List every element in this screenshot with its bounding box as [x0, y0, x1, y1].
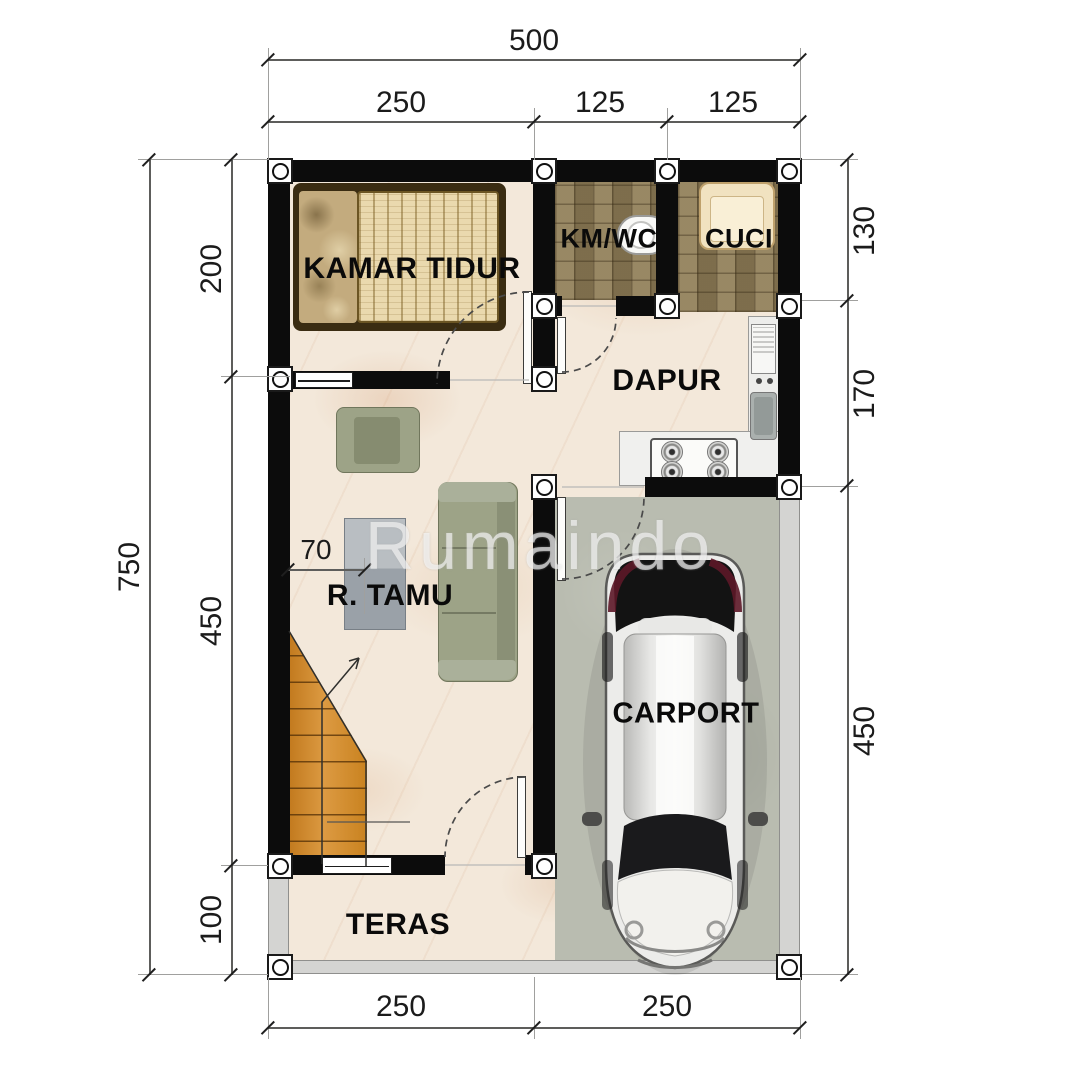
label-bedroom: KAMAR TIDUR [303, 252, 520, 286]
wall-right [778, 160, 800, 497]
label-kitchen: DAPUR [612, 364, 721, 398]
floor-plan: KAMAR TIDUR KM/WC CUCI DAPUR R. TAMU CAR… [0, 0, 1080, 1080]
dim-ext [800, 977, 801, 1039]
dim-bottom-seg-1: 250 [376, 992, 426, 1022]
dim-line-right-segments [847, 160, 849, 975]
car-rear-band [638, 618, 712, 636]
dim-line-left-total [149, 160, 151, 975]
car [582, 548, 768, 976]
dim-line-top-total [268, 59, 800, 61]
dim-left-total: 750 [115, 542, 145, 592]
dim-top-seg-1: 250 [376, 88, 426, 118]
wall-post [267, 366, 293, 392]
bedroom-window [295, 372, 353, 388]
terrace-left-edge [268, 877, 289, 962]
wall-post [267, 158, 293, 184]
stove-burner [707, 441, 729, 463]
dim-ext [802, 159, 858, 160]
wall-post [267, 954, 293, 980]
wall-post [531, 293, 557, 319]
wall-post [654, 293, 680, 319]
dim-ext [802, 974, 858, 975]
wall-post [776, 954, 802, 980]
wall-post [654, 158, 680, 184]
dim-top-total: 500 [509, 26, 559, 56]
dim-top-seg-2: 125 [575, 88, 625, 118]
car-wheel [737, 860, 748, 910]
label-carport: CARPORT [613, 698, 760, 731]
dim-ext [802, 300, 858, 301]
dim-ext [800, 48, 801, 160]
carport-right-edge [779, 497, 800, 962]
car-mirror-right [748, 812, 768, 826]
dim-bottom-seg-2: 250 [642, 992, 692, 1022]
sofa-armrest-bottom [438, 660, 516, 680]
wall-bedroom-right [533, 160, 555, 390]
kitchen-sink-basin [754, 397, 773, 435]
living-window [322, 857, 392, 874]
dim-ext [268, 977, 269, 1039]
dim-ext [138, 159, 268, 160]
sofa-armrest-top [438, 482, 516, 502]
dim-left-seg-2: 450 [197, 596, 227, 646]
car-wheel [602, 860, 613, 910]
dim-left-seg-3: 100 [197, 895, 227, 945]
dim-ext [802, 486, 858, 487]
dim-left-seg-1: 200 [197, 244, 227, 294]
wall-left [268, 160, 290, 877]
dim-ext [138, 974, 268, 975]
wall-post [776, 293, 802, 319]
dim-right-seg-3: 450 [850, 706, 880, 756]
wall-post [531, 158, 557, 184]
dim-right-seg-1: 130 [850, 206, 880, 256]
dim-ext [534, 977, 535, 1039]
refrigerator-knob [767, 378, 773, 384]
dim-line-left-segments [231, 160, 233, 975]
dim-line-living-clearance [288, 569, 365, 571]
front-door-leaf [517, 776, 526, 858]
dim-ext [268, 48, 269, 160]
dim-top-seg-3: 125 [708, 88, 758, 118]
label-bathroom: KM/WC [561, 224, 658, 255]
car-wheel [602, 632, 613, 682]
dim-right-seg-2: 170 [850, 369, 880, 419]
car-mirror-left [582, 812, 602, 826]
watermark: Rumaindo [365, 507, 715, 585]
wall-post [531, 474, 557, 500]
dim-living-clearance: 70 [300, 536, 331, 564]
stove-burner [661, 441, 683, 463]
wall-post [531, 366, 557, 392]
wall-post [776, 474, 802, 500]
car-wheel [737, 632, 748, 682]
dim-ext [667, 108, 668, 160]
armchair-seat [354, 417, 400, 464]
wall-post [776, 158, 802, 184]
label-terrace: TERAS [346, 908, 450, 942]
wall-post [267, 853, 293, 879]
dim-ext [534, 108, 535, 160]
refrigerator-knob [756, 378, 762, 384]
label-laundry: CUCI [705, 224, 773, 255]
bathroom-door-leaf [557, 317, 566, 374]
wall-post [531, 853, 557, 879]
refrigerator-vents [753, 327, 774, 353]
